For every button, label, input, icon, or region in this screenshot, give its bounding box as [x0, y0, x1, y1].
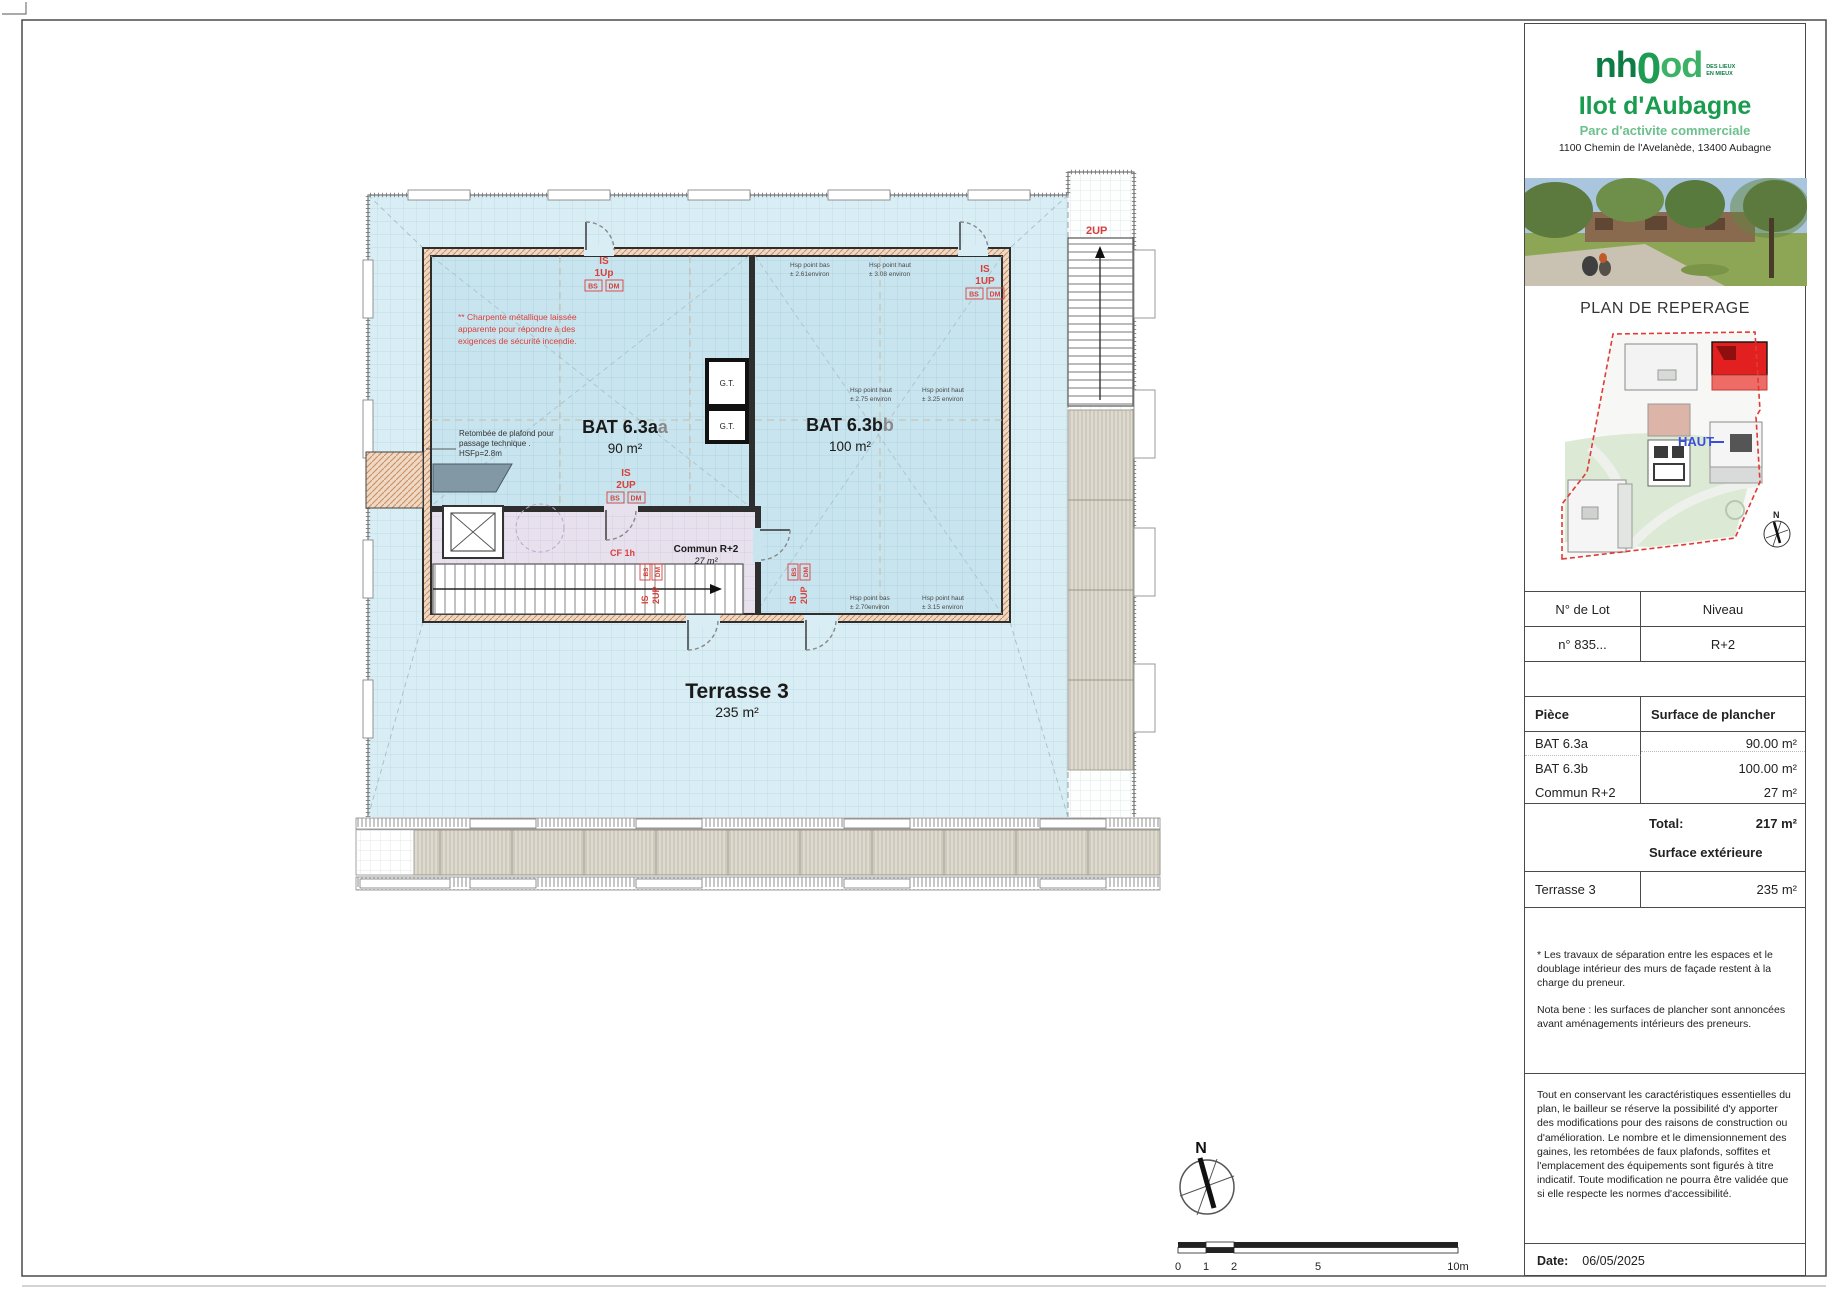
svg-text:± 3.25 environ: ± 3.25 environ	[922, 396, 964, 403]
reperage-heading: PLAN DE REPERAGE	[1525, 300, 1805, 318]
bottom-band	[356, 818, 1160, 890]
svg-text:** Charpente métallique laissé: ** Charpente métallique laissée	[458, 312, 577, 322]
svg-text:± 2.70environ: ± 2.70environ	[850, 604, 890, 611]
lot-col2-header: Niveau	[1641, 602, 1805, 617]
svg-text:IS: IS	[980, 264, 990, 275]
date-label: Date:	[1537, 1254, 1568, 1268]
gt-shafts: G.T. G.T.	[707, 360, 747, 442]
title-block: nh0od DES LIEUXEN MIEUX Ilot d'Aubagne P…	[1524, 23, 1806, 1276]
surface-table-rows: BAT 6.3a 90.00 m² BAT 6.3b 100.00 m² Com…	[1525, 731, 1805, 803]
logo-tagline: DES LIEUXEN MIEUX	[1706, 64, 1735, 79]
scale-1: 1	[1203, 1261, 1209, 1273]
svg-text:Hsp point haut: Hsp point haut	[922, 387, 964, 394]
svg-text:BS: BS	[588, 284, 598, 291]
date-value: 06/05/2025	[1582, 1254, 1645, 1268]
svg-text:Hsp point haut: Hsp point haut	[850, 387, 892, 394]
svg-text:1Up: 1Up	[595, 268, 614, 279]
north-compass: N	[1180, 1140, 1234, 1215]
svg-text:DM: DM	[990, 292, 1001, 299]
terrasse-value: 235 m²	[1641, 882, 1805, 897]
svg-text:± 3.15 environ: ± 3.15 environ	[922, 604, 964, 611]
svg-text:± 2.61environ: ± 2.61environ	[790, 271, 830, 278]
project-subtitle: Parc d'activite commerciale	[1525, 123, 1805, 138]
logo-nh: nh	[1595, 44, 1637, 86]
brand-header: nh0od DES LIEUXEN MIEUX Ilot d'Aubagne P…	[1525, 24, 1805, 178]
scale-10m: 10m	[1447, 1261, 1468, 1273]
legal-text: Tout en conservant les caractéristiques …	[1537, 1089, 1791, 1200]
svg-text:IS: IS	[788, 595, 798, 604]
room-label-bat63b: BAT 6.3bb	[806, 415, 894, 435]
exterior-header: Surface extérieure	[1525, 831, 1805, 860]
wall-stub	[366, 452, 423, 508]
svg-text:BS: BS	[610, 496, 620, 503]
haut-label: HAUT	[1678, 434, 1714, 449]
cf1h-label: CF 1h	[610, 548, 635, 558]
svg-text:± 2.75 environ: ± 2.75 environ	[850, 396, 892, 403]
room-area-commun: 27 m²	[693, 556, 718, 566]
scale-5: 5	[1315, 1261, 1321, 1273]
svg-text:passage technique .: passage technique .	[459, 439, 531, 448]
table-row: BAT 6.3b 100.00 m²	[1525, 756, 1805, 780]
note-travaux: * Les travaux de séparation entre les es…	[1537, 948, 1793, 991]
terrasse-label: Terrasse 3	[1525, 872, 1641, 907]
piece-header: Pièce	[1525, 697, 1641, 731]
terrasse-row: Terrasse 3 235 m²	[1525, 871, 1805, 907]
notes-section: * Les travaux de séparation entre les es…	[1525, 907, 1805, 1073]
north-label: N	[1195, 1140, 1207, 1157]
svg-text:exigences de sécurité incendie: exigences de sécurité incendie.	[458, 336, 577, 346]
svg-text:DM: DM	[655, 567, 662, 577]
svg-text:DM: DM	[631, 496, 642, 503]
svg-text:HSFp=2.8m: HSFp=2.8m	[459, 449, 502, 458]
surface-header: Surface de plancher	[1641, 707, 1805, 722]
table-row: BAT 6.3a 90.00 m²	[1525, 732, 1805, 756]
reperage-section: PLAN DE REPERAGE HAUT	[1525, 286, 1805, 591]
lot-table-header: N° de Lot Niveau	[1525, 591, 1805, 626]
scale-bar: 0 1 2 5 10m	[1175, 1242, 1469, 1273]
nhood-logo: nh0od DES LIEUXEN MIEUX	[1525, 34, 1805, 86]
gt-label-2: G.T.	[720, 422, 735, 431]
site-map: HAUT N	[1530, 322, 1800, 572]
svg-text:Hsp point bas: Hsp point bas	[790, 262, 830, 269]
lot-table-values: n° 835... R+2	[1525, 626, 1805, 661]
svg-text:DM: DM	[609, 284, 620, 291]
svg-text:BS: BS	[643, 567, 650, 577]
room-label-commun: Commun R+2	[674, 544, 739, 555]
table-row: Commun R+2 27 m²	[1525, 780, 1805, 804]
svg-text:apparente pour répondre à des: apparente pour répondre à des	[458, 324, 575, 334]
svg-text:DM: DM	[803, 567, 810, 577]
surface-table-header: Pièce Surface de plancher	[1525, 696, 1805, 731]
right-balcony-boxes	[1134, 250, 1155, 732]
svg-text:1UP: 1UP	[975, 276, 995, 287]
room-label-bat63a: BAT 6.3aa	[582, 417, 669, 437]
interior-staircase	[433, 564, 743, 614]
lot-level: R+2	[1641, 637, 1805, 652]
svg-text:Hsp point haut: Hsp point haut	[869, 262, 911, 269]
total-value: 217 m²	[1683, 816, 1797, 831]
photo-illustration	[1525, 178, 1807, 286]
scale-0: 0	[1175, 1261, 1181, 1273]
note-nota-bene: Nota bene : les surfaces de plancher son…	[1537, 1003, 1793, 1031]
gt-label-1: G.T.	[720, 379, 735, 388]
svg-text:2UP: 2UP	[616, 480, 636, 491]
room-area-bat63a: 90 m²	[608, 441, 643, 456]
total-label: Total:	[1649, 816, 1683, 831]
room-area-terrasse: 235 m²	[715, 704, 759, 720]
lot-number: n° 835...	[1525, 627, 1641, 661]
room-area-bat63b: 100 m²	[829, 439, 872, 454]
svg-text:Hsp point haut: Hsp point haut	[922, 595, 964, 602]
svg-text:Retombée de plafond pour: Retombée de plafond pour	[459, 429, 554, 438]
svg-text:IS: IS	[599, 256, 609, 267]
svg-text:2UP: 2UP	[651, 586, 661, 604]
sheet-corner-mark	[2, 2, 26, 14]
svg-text:IS: IS	[640, 595, 650, 604]
drawing-sheet: G.T. G.T.	[0, 0, 1838, 1300]
scale-2: 2	[1231, 1261, 1237, 1273]
svg-text:IS: IS	[621, 468, 631, 479]
empty-row	[1525, 661, 1805, 696]
svg-text:2UP: 2UP	[799, 586, 809, 604]
logo-zero: 0	[1637, 51, 1660, 86]
svg-text:N: N	[1773, 510, 1780, 520]
project-address: 1100 Chemin de l'Avelanède, 13400 Aubagn…	[1525, 142, 1805, 154]
elevator-shaft	[443, 506, 503, 558]
date-row: Date: 06/05/2025	[1525, 1243, 1805, 1277]
external-staircase	[1068, 238, 1133, 770]
room-label-terrasse: Terrasse 3	[685, 680, 789, 703]
svg-text:BS: BS	[791, 567, 798, 577]
lot-col1-header: N° de Lot	[1525, 592, 1641, 626]
charpente-note: ** Charpente métallique laissée apparent…	[458, 312, 577, 346]
svg-text:BS: BS	[969, 292, 979, 299]
stair-2up-label: 2UP	[1086, 225, 1107, 237]
total-section: Total: 217 m² Surface extérieure	[1525, 803, 1805, 871]
project-photo	[1525, 178, 1805, 286]
svg-text:Hsp point bas: Hsp point bas	[850, 595, 890, 602]
logo-od: od	[1660, 44, 1702, 86]
svg-text:± 3.08 environ: ± 3.08 environ	[869, 271, 911, 278]
legal-section: Tout en conservant les caractéristiques …	[1525, 1073, 1805, 1243]
project-title: Ilot d'Aubagne	[1525, 92, 1805, 121]
